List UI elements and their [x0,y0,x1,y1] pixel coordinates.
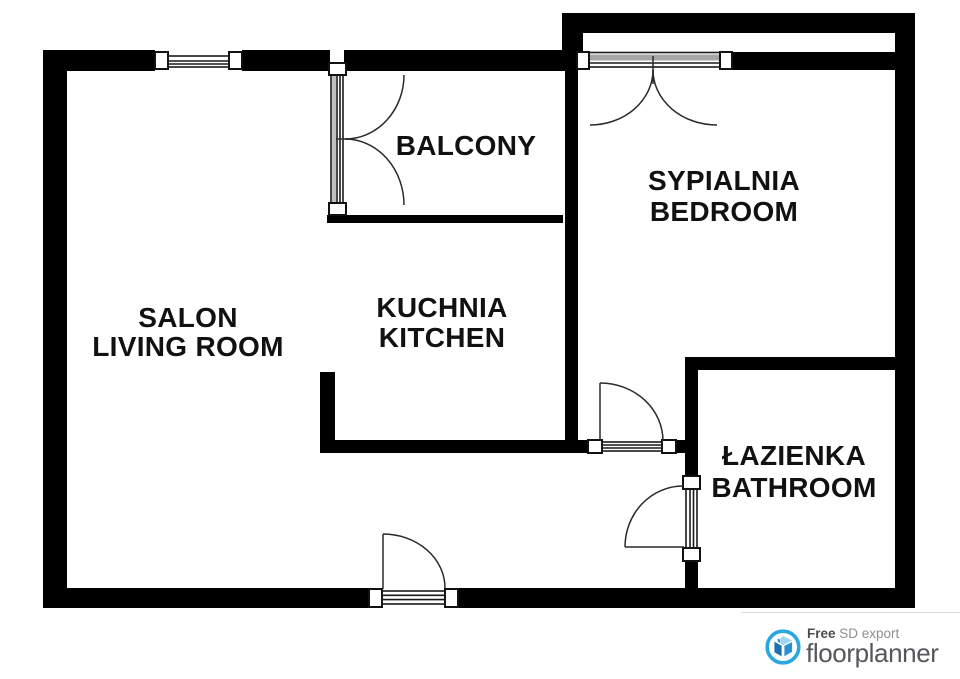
kitchen-label-pl: KUCHNIA [376,292,507,323]
wall-bedroom-kitchen-divider [565,55,578,440]
bedroom-door [588,383,676,453]
window-cap-icon [229,52,242,69]
floorplanner-logo: Free SD export floorplanner [762,625,960,675]
door-cap-icon [683,476,700,489]
door-swing-arc [600,383,663,441]
door-cap-icon [683,548,700,561]
wall-bedroom-window-right [732,52,897,70]
wall-bathroom-top [687,357,915,370]
living-room-window [155,52,242,69]
bedroom-label-pl: SYPIALNIA [648,165,800,196]
living-room-label-pl: SALON [138,302,238,333]
door-cap-icon [329,203,346,215]
bathroom-label-pl: ŁAZIENKA [722,440,866,471]
door-swing-arc [383,534,445,588]
bathroom-door [625,476,700,561]
wall-left-exterior [43,50,67,608]
kitchen-label-en: KITCHEN [379,322,506,353]
bedroom-french-window [577,52,732,125]
wall-kitchen-bottom [320,440,589,453]
floor-plan-drawing: SALON LIVING ROOM KUCHNIA KITCHEN BALCON… [0,0,960,679]
wall-balcony-top [344,50,565,71]
door-cap-icon [329,63,346,75]
door-cap-icon [588,440,602,453]
floorplanner-house-icon [764,628,802,666]
entry-door [369,534,458,607]
window-glass-band [589,55,720,61]
wall-top-right-of-window [242,50,330,71]
wall-bottom-left-of-entry [43,588,370,608]
window-cap-icon [155,52,168,69]
floor-plan-page: SALON LIVING ROOM KUCHNIA KITCHEN BALCON… [0,0,960,679]
door-threshold-icon [686,489,697,548]
window-cap-icon [577,52,589,69]
bathroom-label-en: BATHROOM [711,472,876,503]
door-cap-icon [662,440,676,453]
door-swing-arc [653,70,717,125]
balcony-label: BALCONY [396,130,537,161]
door-cap-icon [445,589,458,607]
door-threshold-icon [602,442,662,451]
logo-brand-name: floorplanner [806,638,939,669]
wall-balcony-bottom [327,215,563,223]
wall-bottom-right-of-entry [455,588,915,608]
door-swing-arc [625,486,683,547]
door-cap-icon [369,589,382,607]
door-glass-band [332,75,336,203]
door-threshold-icon [382,591,445,604]
living-room-label-en: LIVING ROOM [92,331,284,362]
wall-bedroom-top-exterior [562,13,915,33]
balcony-french-door [329,63,404,215]
wall-bedroom-left-upper [562,13,583,55]
window-cap-icon [720,52,732,69]
wall-top-left-of-window [43,50,155,71]
door-swing-arc [590,70,653,125]
bedroom-label-en: BEDROOM [650,196,798,227]
logo-separator-line [742,612,960,613]
wall-right-exterior [895,13,915,608]
wall-bathroom-left-upper [685,357,698,477]
